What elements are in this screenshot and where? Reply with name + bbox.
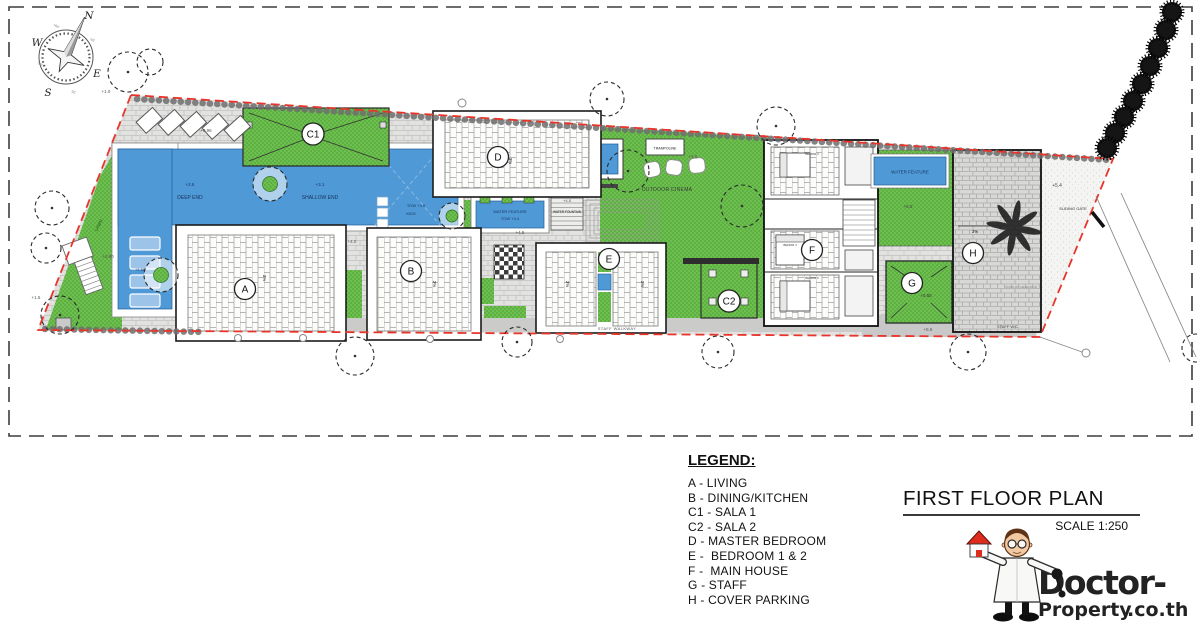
level-label: +0.96 xyxy=(200,128,212,133)
slope-label: 3% xyxy=(972,229,979,234)
room-d-label: D xyxy=(494,153,501,164)
building-f-main-house xyxy=(764,140,878,326)
water-feature-tow-label: TOW +4.4 xyxy=(501,216,520,221)
compass-se-label: SE xyxy=(70,89,77,95)
slope-label: 3% xyxy=(508,158,513,165)
level-label: +4.5 xyxy=(516,230,525,235)
legend-item: H - COVER PARKING xyxy=(688,593,943,608)
level-label: +4.0 xyxy=(348,239,357,244)
outdoor-chessboard xyxy=(494,245,524,279)
deep-end-label: DEEP END xyxy=(177,195,203,201)
compass-nw-label: NW xyxy=(53,23,61,29)
level-label: +1.0 xyxy=(102,89,111,94)
staircase xyxy=(843,200,875,246)
compass-s-label: S xyxy=(44,87,51,99)
company-logo: Doctor- Property .co.th xyxy=(955,520,1200,628)
bed-icon xyxy=(776,235,804,265)
level-label: +1.5 xyxy=(32,295,41,300)
bathroom xyxy=(845,250,873,270)
bedroom5-label: BEDRM 5 xyxy=(805,276,819,280)
legend-title: LEGEND: xyxy=(688,452,943,469)
sliding-gate-bar xyxy=(1092,212,1104,227)
cinema-screen xyxy=(683,258,759,264)
kids-pool-label: KIDS xyxy=(406,211,416,216)
logo-word-property: Property xyxy=(1038,599,1132,621)
site-plan-drawing: N W E S NW NE SW SE xyxy=(0,0,1200,446)
water-feature-central xyxy=(471,196,549,233)
logo-word-coth: .co.th xyxy=(1127,599,1188,621)
level-label: +0.50 xyxy=(920,293,932,298)
level-label: +3.58 xyxy=(135,267,146,272)
floor-plan-sheet: N W E S NW NE SW SE xyxy=(0,0,1200,628)
bathroom xyxy=(845,147,873,185)
room-a-label: A xyxy=(242,285,249,296)
staff-wc-label: STAFF W.C. xyxy=(997,324,1019,329)
bedroom4-label: BEDRM 4 xyxy=(783,243,797,247)
bathroom xyxy=(845,276,873,316)
legend-item: G - STAFF xyxy=(688,578,943,593)
slope-label: 3% xyxy=(640,281,645,288)
level-label: +2.90 xyxy=(102,254,114,259)
house-icon xyxy=(967,531,991,557)
slope-label: 3% xyxy=(432,281,437,288)
building-b-dining-kitchen xyxy=(367,228,481,340)
bedroom3-label: BEDRM 3 xyxy=(805,152,819,156)
sala-g-staff xyxy=(886,261,952,323)
room-f-label: F xyxy=(809,246,815,257)
compass-rose: N W E S NW NE SW SE xyxy=(32,9,103,99)
room-c2-label: C2 xyxy=(723,297,736,308)
water-fountain-label: WATER FOUNTAIN xyxy=(553,210,582,214)
compass-ne-label: NE xyxy=(89,37,96,43)
generator-label: STAND BY GENERATOR xyxy=(1005,285,1037,289)
sliding-gate-label: SLIDING GATE xyxy=(1059,206,1087,211)
room-h-label: H xyxy=(969,249,976,260)
planter-strip xyxy=(346,270,362,320)
level-label: +5.4 xyxy=(1052,183,1062,189)
level-label: +5.0 xyxy=(904,204,913,209)
room-e-label: E xyxy=(606,255,613,266)
building-a-living xyxy=(176,225,346,341)
slope-label: 3% xyxy=(565,281,570,288)
water-feature-right-label: WATER FEATURE xyxy=(891,170,929,175)
legend-item: F - MAIN HOUSE xyxy=(688,564,943,579)
legend-item: D - MASTER BEDROOM xyxy=(688,534,943,549)
doctor-property-logo: Doctor- Property .co.th xyxy=(955,520,1200,626)
drawing-title: FIRST FLOOR PLAN xyxy=(903,487,1140,516)
staff-walkway-label: STAFF WALKWAY xyxy=(598,326,637,331)
room-c1-label: C1 xyxy=(307,130,320,141)
room-b-label: B xyxy=(408,267,415,278)
legend-item: E - BEDROOM 1 & 2 xyxy=(688,549,943,564)
outdoor-cinema-label: OUTDOOR CINEMA xyxy=(642,187,693,193)
level-label: +4.5 xyxy=(563,198,572,203)
compass-w-label: W xyxy=(32,37,44,49)
bed-icon xyxy=(780,281,810,311)
level-label: +3.1 xyxy=(316,182,325,187)
trampoline-label: TRAMPOLINE xyxy=(654,147,677,151)
compass-n-label: N xyxy=(83,10,94,22)
level-label: +5.5 xyxy=(924,327,933,332)
compass-e-label: E xyxy=(92,68,101,80)
bed-icon xyxy=(780,153,810,177)
shallow-end-label: SHALLOW END xyxy=(302,195,339,201)
room-g-label: G xyxy=(908,279,916,290)
level-label: +2.5 xyxy=(186,182,195,187)
slope-label: 3% xyxy=(262,275,267,282)
kids-pool-tow-label: TOW +3.9 xyxy=(407,203,426,208)
level-label: +4.5 xyxy=(689,154,698,159)
tree-row-icon xyxy=(1097,2,1182,158)
water-feature-label: WATER FEATURE xyxy=(493,209,527,214)
